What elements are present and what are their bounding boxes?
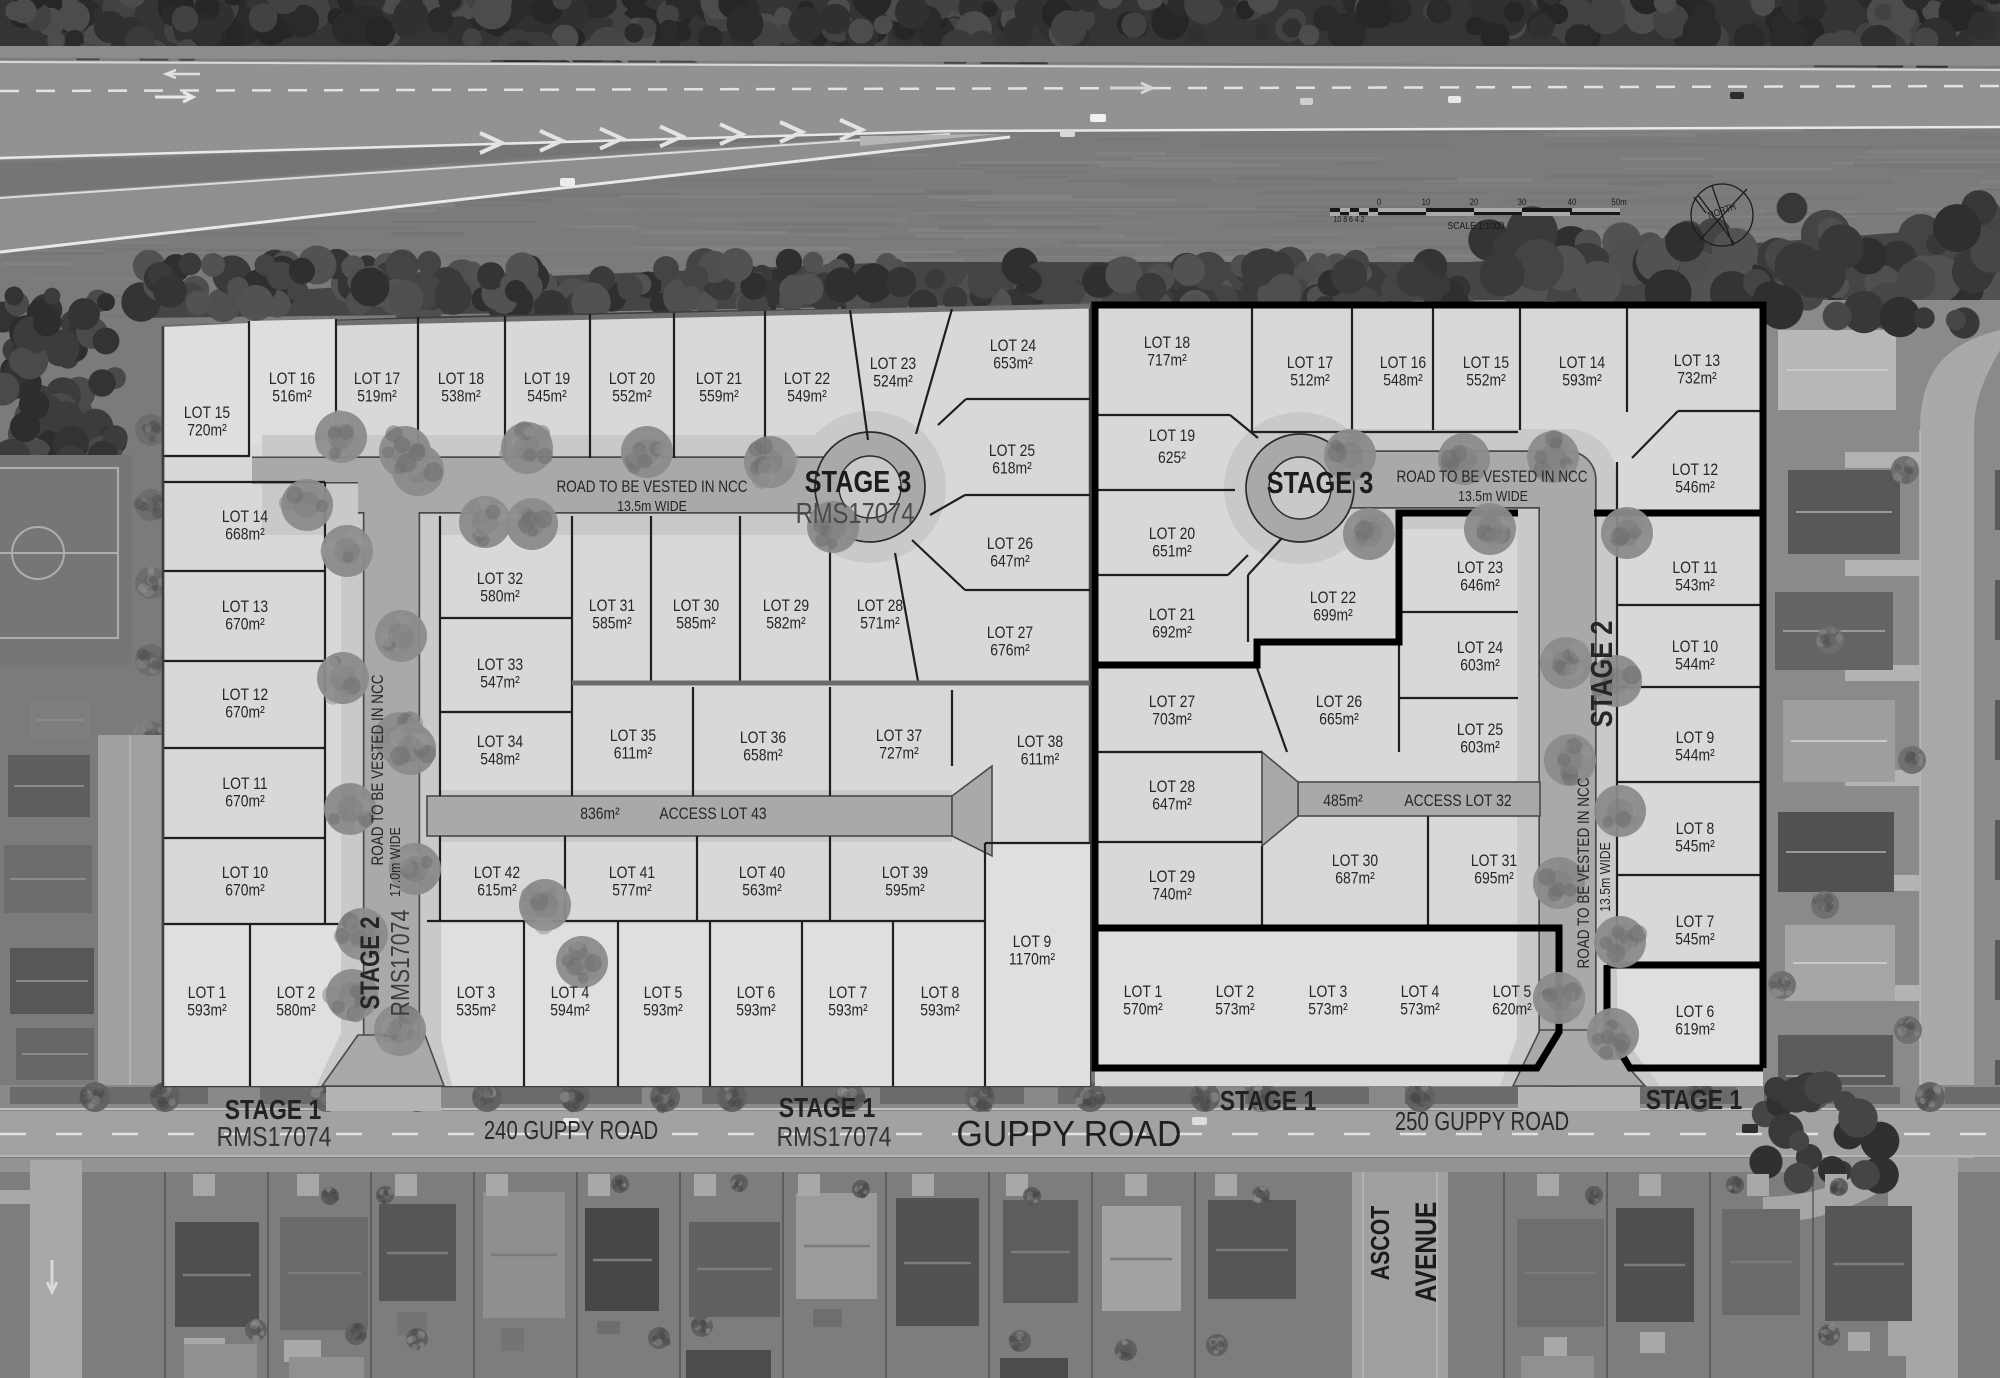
svg-text:593m²: 593m² bbox=[1562, 371, 1601, 390]
svg-text:LOT 9: LOT 9 bbox=[1013, 933, 1051, 952]
svg-text:620m²: 620m² bbox=[1492, 1000, 1531, 1019]
svg-text:573m²: 573m² bbox=[1215, 1000, 1254, 1019]
svg-text:516m²: 516m² bbox=[272, 387, 311, 406]
svg-text:LOT 5: LOT 5 bbox=[644, 984, 682, 1003]
svg-text:593m²: 593m² bbox=[828, 1001, 867, 1020]
svg-text:LOT 37: LOT 37 bbox=[876, 727, 922, 746]
svg-text:670m²: 670m² bbox=[225, 703, 264, 722]
svg-text:250 GUPPY ROAD: 250 GUPPY ROAD bbox=[1395, 1107, 1569, 1136]
svg-text:LOT 4: LOT 4 bbox=[551, 984, 590, 1003]
svg-text:ROAD TO BE VESTED IN NCC: ROAD TO BE VESTED IN NCC bbox=[556, 478, 747, 497]
svg-text:LOT 1: LOT 1 bbox=[1124, 983, 1162, 1002]
svg-text:RMS17074: RMS17074 bbox=[217, 1122, 332, 1153]
svg-text:LOT 23: LOT 23 bbox=[870, 355, 916, 374]
svg-text:17.0m WIDE: 17.0m WIDE bbox=[387, 827, 403, 897]
svg-text:LOT 9: LOT 9 bbox=[1676, 729, 1714, 748]
svg-text:LOT 24: LOT 24 bbox=[1457, 639, 1504, 658]
svg-text:573m²: 573m² bbox=[1400, 1000, 1439, 1019]
svg-text:647m²: 647m² bbox=[990, 552, 1029, 571]
svg-text:LOT 20: LOT 20 bbox=[609, 370, 656, 389]
svg-text:50m: 50m bbox=[1611, 196, 1626, 207]
svg-text:LOT 4: LOT 4 bbox=[1401, 983, 1440, 1002]
svg-text:732m²: 732m² bbox=[1677, 369, 1716, 388]
svg-text:593m²: 593m² bbox=[187, 1001, 226, 1020]
svg-text:240 GUPPY ROAD: 240 GUPPY ROAD bbox=[484, 1116, 658, 1145]
svg-text:519m²: 519m² bbox=[357, 387, 396, 406]
svg-text:LOT 26: LOT 26 bbox=[1316, 693, 1362, 712]
svg-text:LOT 12: LOT 12 bbox=[1672, 461, 1718, 480]
svg-text:647m²: 647m² bbox=[1152, 795, 1191, 814]
svg-text:703m²: 703m² bbox=[1152, 710, 1191, 729]
svg-text:559m²: 559m² bbox=[699, 387, 738, 406]
svg-text:LOT 10: LOT 10 bbox=[1672, 638, 1719, 657]
svg-text:676m²: 676m² bbox=[990, 641, 1029, 660]
svg-text:547m²: 547m² bbox=[480, 673, 519, 692]
svg-text:LOT 26: LOT 26 bbox=[987, 535, 1033, 554]
svg-text:LOT 3: LOT 3 bbox=[457, 984, 495, 1003]
svg-text:573m²: 573m² bbox=[1308, 1000, 1347, 1019]
svg-text:LOT 29: LOT 29 bbox=[763, 597, 809, 616]
svg-text:LOT 11: LOT 11 bbox=[1672, 559, 1717, 578]
svg-text:727m²: 727m² bbox=[879, 744, 918, 763]
svg-text:625²: 625² bbox=[1158, 449, 1186, 468]
svg-text:580m²: 580m² bbox=[276, 1001, 315, 1020]
svg-text:580m²: 580m² bbox=[480, 587, 519, 606]
svg-text:10 8 6 4 2: 10 8 6 4 2 bbox=[1334, 214, 1365, 224]
svg-text:552m²: 552m² bbox=[1466, 371, 1505, 390]
svg-text:618m²: 618m² bbox=[992, 459, 1031, 478]
svg-text:30: 30 bbox=[1518, 196, 1527, 207]
svg-text:LOT 30: LOT 30 bbox=[673, 597, 720, 616]
svg-text:LOT 8: LOT 8 bbox=[921, 984, 959, 1003]
svg-text:LOT 36: LOT 36 bbox=[740, 729, 786, 748]
svg-text:ASCOT: ASCOT bbox=[1366, 1205, 1396, 1280]
svg-text:544m²: 544m² bbox=[1675, 746, 1714, 765]
svg-text:485m²: 485m² bbox=[1323, 792, 1362, 811]
svg-text:570m²: 570m² bbox=[1123, 1000, 1162, 1019]
svg-text:STAGE 2: STAGE 2 bbox=[1585, 621, 1620, 728]
svg-text:LOT 20: LOT 20 bbox=[1149, 525, 1196, 544]
svg-text:LOT 8: LOT 8 bbox=[1676, 820, 1714, 839]
svg-text:13.5m WIDE: 13.5m WIDE bbox=[1597, 842, 1613, 912]
svg-text:LOT 24: LOT 24 bbox=[990, 337, 1037, 356]
svg-text:552m²: 552m² bbox=[612, 387, 651, 406]
svg-text:593m²: 593m² bbox=[736, 1001, 775, 1020]
svg-text:LOT 2: LOT 2 bbox=[1216, 983, 1254, 1002]
svg-text:LOT 15: LOT 15 bbox=[184, 404, 230, 423]
svg-text:LOT 22: LOT 22 bbox=[784, 370, 830, 389]
svg-text:836m²: 836m² bbox=[580, 805, 619, 824]
svg-text:LOT 13: LOT 13 bbox=[1674, 352, 1720, 371]
svg-text:LOT 21: LOT 21 bbox=[696, 370, 742, 389]
svg-text:40: 40 bbox=[1568, 196, 1577, 207]
svg-text:548m²: 548m² bbox=[1383, 371, 1422, 390]
svg-text:611m²: 611m² bbox=[1021, 750, 1059, 769]
svg-text:LOT 12: LOT 12 bbox=[222, 686, 268, 705]
svg-text:670m²: 670m² bbox=[225, 792, 264, 811]
svg-text:0: 0 bbox=[1377, 196, 1381, 207]
svg-text:603m²: 603m² bbox=[1460, 656, 1499, 675]
svg-text:LOT 21: LOT 21 bbox=[1149, 606, 1195, 625]
svg-text:LOT 19: LOT 19 bbox=[524, 370, 570, 389]
svg-text:740m²: 740m² bbox=[1152, 885, 1191, 904]
svg-text:692m²: 692m² bbox=[1152, 623, 1191, 642]
svg-text:668m²: 668m² bbox=[225, 525, 264, 544]
svg-text:LOT 30: LOT 30 bbox=[1332, 852, 1379, 871]
svg-text:LOT 18: LOT 18 bbox=[438, 370, 484, 389]
svg-text:LOT 27: LOT 27 bbox=[1149, 693, 1195, 712]
svg-text:13.5m WIDE: 13.5m WIDE bbox=[617, 498, 687, 514]
svg-text:STAGE 2: STAGE 2 bbox=[356, 916, 386, 1009]
svg-text:LOT 33: LOT 33 bbox=[477, 656, 523, 675]
svg-text:RMS17074: RMS17074 bbox=[386, 910, 416, 1017]
svg-text:699m²: 699m² bbox=[1313, 606, 1352, 625]
svg-text:LOT 18: LOT 18 bbox=[1144, 334, 1190, 353]
svg-text:665m²: 665m² bbox=[1319, 710, 1358, 729]
svg-text:STAGE 1: STAGE 1 bbox=[779, 1093, 876, 1124]
svg-text:ROAD TO BE VESTED IN NCC: ROAD TO BE VESTED IN NCC bbox=[1575, 777, 1594, 968]
svg-text:543m²: 543m² bbox=[1675, 576, 1714, 595]
svg-text:GUPPY ROAD: GUPPY ROAD bbox=[957, 1114, 1182, 1154]
svg-text:STAGE 1: STAGE 1 bbox=[1646, 1085, 1743, 1116]
svg-text:717m²: 717m² bbox=[1147, 351, 1186, 370]
svg-text:RMS17074: RMS17074 bbox=[777, 1122, 892, 1153]
svg-text:646m²: 646m² bbox=[1460, 576, 1499, 595]
svg-text:LOT 38: LOT 38 bbox=[1017, 733, 1063, 752]
svg-text:549m²: 549m² bbox=[787, 387, 826, 406]
svg-text:LOT 1: LOT 1 bbox=[188, 984, 226, 1003]
svg-text:670m²: 670m² bbox=[225, 881, 264, 900]
svg-text:LOT 16: LOT 16 bbox=[269, 370, 315, 389]
svg-text:LOT 14: LOT 14 bbox=[222, 508, 269, 527]
svg-text:LOT 19: LOT 19 bbox=[1149, 427, 1195, 446]
svg-text:LOT 41: LOT 41 bbox=[609, 864, 655, 883]
svg-text:LOT 25: LOT 25 bbox=[989, 442, 1035, 461]
svg-text:LOT 34: LOT 34 bbox=[477, 733, 524, 752]
svg-text:LOT 14: LOT 14 bbox=[1559, 354, 1606, 373]
svg-text:20: 20 bbox=[1470, 196, 1479, 207]
svg-text:ROAD TO BE VESTED IN NCC: ROAD TO BE VESTED IN NCC bbox=[369, 674, 388, 865]
svg-text:LOT 35: LOT 35 bbox=[610, 727, 656, 746]
svg-text:RMS17074: RMS17074 bbox=[796, 497, 915, 530]
svg-text:LOT 7: LOT 7 bbox=[829, 984, 867, 1003]
svg-text:LOT 6: LOT 6 bbox=[737, 984, 775, 1003]
svg-text:ACCESS LOT 43: ACCESS LOT 43 bbox=[659, 805, 766, 824]
svg-text:595m²: 595m² bbox=[885, 881, 924, 900]
svg-text:670m²: 670m² bbox=[225, 615, 264, 634]
svg-text:LOT 3: LOT 3 bbox=[1309, 983, 1347, 1002]
svg-text:546m²: 546m² bbox=[1675, 478, 1714, 497]
svg-text:512m²: 512m² bbox=[1290, 371, 1329, 390]
svg-text:571m²: 571m² bbox=[860, 614, 899, 633]
svg-text:544m²: 544m² bbox=[1675, 655, 1714, 674]
svg-text:524m²: 524m² bbox=[873, 372, 912, 391]
svg-text:LOT 17: LOT 17 bbox=[354, 370, 400, 389]
svg-text:LOT 25: LOT 25 bbox=[1457, 721, 1503, 740]
svg-text:LOT 22: LOT 22 bbox=[1310, 589, 1356, 608]
svg-text:10: 10 bbox=[1422, 196, 1431, 207]
svg-text:603m²: 603m² bbox=[1460, 738, 1499, 757]
svg-text:611m²: 611m² bbox=[614, 744, 652, 763]
svg-text:STAGE 1: STAGE 1 bbox=[1220, 1086, 1317, 1117]
svg-text:LOT 40: LOT 40 bbox=[739, 864, 786, 883]
svg-text:LOT 5: LOT 5 bbox=[1493, 983, 1531, 1002]
svg-text:577m²: 577m² bbox=[612, 881, 651, 900]
svg-text:LOT 42: LOT 42 bbox=[474, 864, 520, 883]
svg-text:LOT 16: LOT 16 bbox=[1380, 354, 1426, 373]
svg-text:593m²: 593m² bbox=[920, 1001, 959, 1020]
svg-text:651m²: 651m² bbox=[1152, 542, 1191, 561]
svg-text:720m²: 720m² bbox=[187, 421, 226, 440]
svg-text:LOT 31: LOT 31 bbox=[589, 597, 635, 616]
svg-text:LOT 29: LOT 29 bbox=[1149, 868, 1195, 887]
svg-text:593m²: 593m² bbox=[643, 1001, 682, 1020]
svg-text:619m²: 619m² bbox=[1675, 1020, 1714, 1039]
svg-text:LOT 23: LOT 23 bbox=[1457, 559, 1503, 578]
svg-text:563m²: 563m² bbox=[742, 881, 781, 900]
svg-text:LOT 13: LOT 13 bbox=[222, 598, 268, 617]
svg-text:545m²: 545m² bbox=[1675, 930, 1714, 949]
svg-text:545m²: 545m² bbox=[527, 387, 566, 406]
svg-text:LOT 2: LOT 2 bbox=[277, 984, 315, 1003]
svg-text:LOT 32: LOT 32 bbox=[477, 570, 523, 589]
svg-text:ACCESS LOT 32: ACCESS LOT 32 bbox=[1404, 792, 1511, 811]
svg-text:LOT 15: LOT 15 bbox=[1463, 354, 1509, 373]
svg-text:STAGE 3: STAGE 3 bbox=[1267, 466, 1374, 501]
svg-text:535m²: 535m² bbox=[456, 1001, 495, 1020]
svg-text:STAGE 3: STAGE 3 bbox=[805, 465, 912, 500]
svg-text:LOT 10: LOT 10 bbox=[222, 864, 269, 883]
svg-text:653m²: 653m² bbox=[993, 354, 1032, 373]
svg-text:615m²: 615m² bbox=[477, 881, 516, 900]
svg-text:687m²: 687m² bbox=[1335, 869, 1374, 888]
svg-text:LOT 6: LOT 6 bbox=[1676, 1003, 1714, 1022]
svg-text:13.5m WIDE: 13.5m WIDE bbox=[1458, 488, 1528, 504]
svg-text:545m²: 545m² bbox=[1675, 837, 1714, 856]
svg-text:594m²: 594m² bbox=[550, 1001, 589, 1020]
svg-text:585m²: 585m² bbox=[592, 614, 631, 633]
svg-text:SCALE 1:1000: SCALE 1:1000 bbox=[1448, 220, 1505, 232]
svg-text:LOT 28: LOT 28 bbox=[1149, 778, 1195, 797]
svg-text:LOT 31: LOT 31 bbox=[1471, 852, 1517, 871]
svg-text:1170m²: 1170m² bbox=[1009, 950, 1055, 969]
svg-text:LOT 39: LOT 39 bbox=[882, 864, 928, 883]
svg-text:LOT 28: LOT 28 bbox=[857, 597, 903, 616]
svg-text:695m²: 695m² bbox=[1474, 869, 1513, 888]
svg-text:585m²: 585m² bbox=[676, 614, 715, 633]
svg-text:582m²: 582m² bbox=[766, 614, 805, 633]
svg-text:LOT 11: LOT 11 bbox=[222, 775, 267, 794]
svg-text:LOT 7: LOT 7 bbox=[1676, 913, 1714, 932]
svg-text:LOT 27: LOT 27 bbox=[987, 624, 1033, 643]
svg-text:658m²: 658m² bbox=[743, 746, 782, 765]
svg-text:AVENUE: AVENUE bbox=[1409, 1202, 1443, 1303]
svg-text:ROAD TO BE VESTED IN NCC: ROAD TO BE VESTED IN NCC bbox=[1396, 468, 1587, 487]
svg-text:LOT 17: LOT 17 bbox=[1287, 354, 1333, 373]
svg-text:548m²: 548m² bbox=[480, 750, 519, 769]
svg-text:538m²: 538m² bbox=[441, 387, 480, 406]
